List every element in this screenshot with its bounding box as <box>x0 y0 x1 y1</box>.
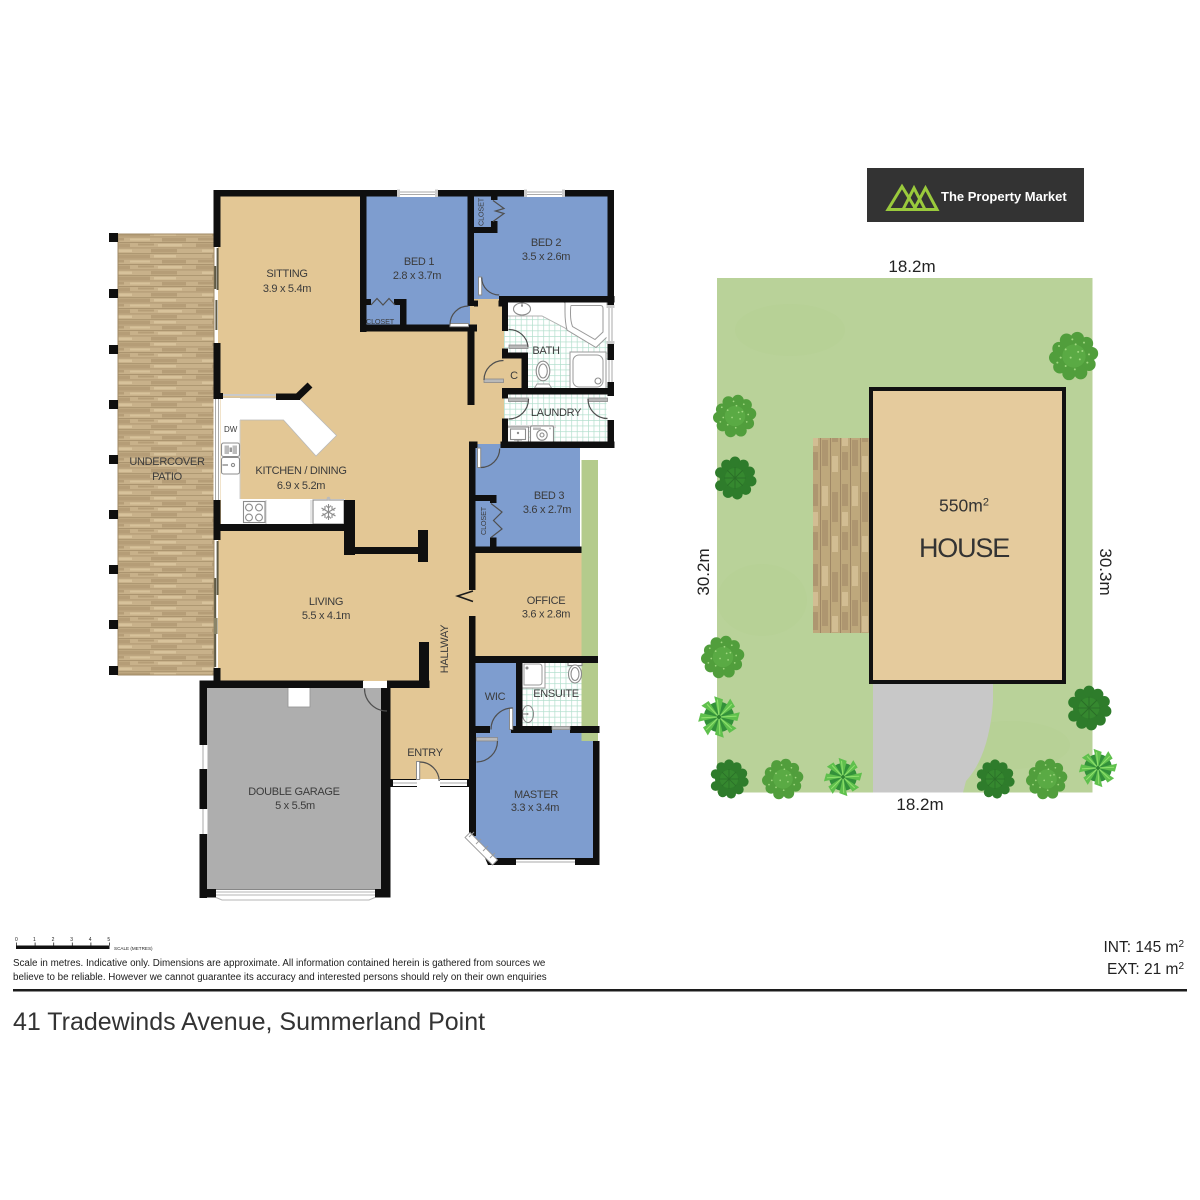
svg-text:LIVING: LIVING <box>309 596 343 608</box>
svg-text:4: 4 <box>89 937 92 943</box>
svg-text:3.6 x 2.8m: 3.6 x 2.8m <box>522 609 570 621</box>
svg-text:Scale in metres. Indicative on: Scale in metres. Indicative only. Dimens… <box>13 958 546 969</box>
svg-text:believe to be reliable. Howeve: believe to be reliable. However we canno… <box>13 972 547 983</box>
svg-text:1: 1 <box>33 937 36 943</box>
svg-text:C: C <box>510 370 518 382</box>
svg-text:HALLWAY: HALLWAY <box>439 624 451 673</box>
svg-text:WIC: WIC <box>485 691 506 703</box>
svg-text:18.2m: 18.2m <box>896 795 943 814</box>
svg-text:18.2m: 18.2m <box>888 257 935 276</box>
svg-text:MASTER: MASTER <box>514 789 558 801</box>
svg-text:2: 2 <box>52 937 55 943</box>
svg-text:2.8 x 3.7m: 2.8 x 3.7m <box>393 270 441 282</box>
svg-text:30.2m: 30.2m <box>694 548 713 595</box>
svg-text:6.9 x 5.2m: 6.9 x 5.2m <box>277 480 325 492</box>
svg-text:5.5 x 4.1m: 5.5 x 4.1m <box>302 610 350 622</box>
svg-text:EXT: 21 m2: EXT: 21 m2 <box>1107 961 1185 978</box>
svg-text:The Property Market: The Property Market <box>941 189 1067 204</box>
svg-text:0: 0 <box>15 937 18 943</box>
svg-text:DW: DW <box>224 425 238 434</box>
svg-text:ENSUITE: ENSUITE <box>533 688 579 700</box>
svg-text:BATH: BATH <box>532 345 560 357</box>
svg-text:DOUBLE GARAGE: DOUBLE GARAGE <box>248 786 339 798</box>
svg-text:KITCHEN / DINING: KITCHEN / DINING <box>255 465 346 477</box>
svg-text:30.3m: 30.3m <box>1096 548 1115 595</box>
svg-text:3.9 x 5.4m: 3.9 x 5.4m <box>263 283 311 295</box>
svg-text:SCALE (METRES): SCALE (METRES) <box>114 946 153 951</box>
svg-text:UNDERCOVER: UNDERCOVER <box>129 456 205 468</box>
svg-text:ENTRY: ENTRY <box>407 747 444 759</box>
svg-text:BED 3: BED 3 <box>534 490 564 502</box>
svg-text:LAUNDRY: LAUNDRY <box>531 407 582 419</box>
svg-text:PATIO: PATIO <box>152 471 183 483</box>
svg-text:5 x 5.5m: 5 x 5.5m <box>275 800 315 812</box>
svg-text:HOUSE: HOUSE <box>919 533 1009 563</box>
svg-text:SITTING: SITTING <box>266 268 307 280</box>
svg-text:BED 2: BED 2 <box>531 237 561 249</box>
svg-text:INT: 145 m2: INT: 145 m2 <box>1103 939 1184 956</box>
svg-text:CLOSET: CLOSET <box>479 506 488 535</box>
svg-text:41 Tradewinds Avenue, Summerla: 41 Tradewinds Avenue, Summerland Point <box>13 1008 485 1036</box>
svg-text:3.3 x 3.4m: 3.3 x 3.4m <box>511 802 559 814</box>
svg-text:CLOSET: CLOSET <box>477 197 486 226</box>
svg-text:3: 3 <box>70 937 73 943</box>
svg-text:OFFICE: OFFICE <box>527 595 566 607</box>
svg-text:5: 5 <box>107 937 110 943</box>
svg-text:3.5 x 2.6m: 3.5 x 2.6m <box>522 251 570 263</box>
svg-text:CLOSET: CLOSET <box>366 317 395 326</box>
svg-text:3.6 x 2.7m: 3.6 x 2.7m <box>523 504 571 516</box>
svg-text:BED 1: BED 1 <box>404 256 434 268</box>
svg-text:550m2: 550m2 <box>939 496 989 516</box>
